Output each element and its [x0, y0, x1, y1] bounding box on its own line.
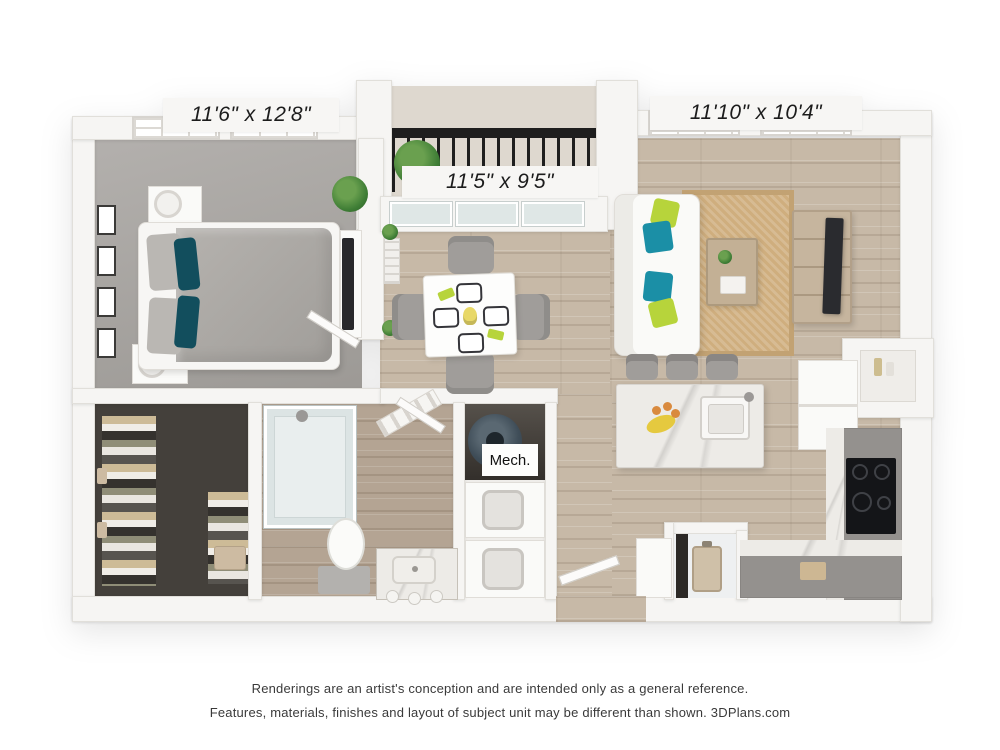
closet-hook-1	[97, 468, 107, 484]
table-centerpiece	[463, 307, 478, 325]
cooktop-burner-4	[877, 496, 891, 510]
closet-bench	[214, 546, 246, 570]
dining-chair-right	[512, 294, 550, 340]
napkin-lime-2	[487, 328, 505, 340]
vanity-knob-2	[408, 592, 421, 605]
living-dimension-label: 11'10" x 10'4"	[690, 101, 822, 125]
suitcase	[692, 546, 722, 592]
bed-pillow-teal-2	[174, 295, 200, 349]
washer-door	[482, 490, 524, 530]
balcony-door-glass-3	[522, 202, 584, 226]
balcony-door-glass-1	[390, 202, 452, 226]
interior-wall-divider-left	[72, 388, 385, 404]
disclaimer-line-2: Features, materials, finishes and layout…	[0, 705, 1000, 720]
entry-door-opening	[556, 596, 646, 622]
dining-table	[423, 272, 518, 357]
closet-hanging-clothes-left	[102, 416, 156, 586]
coffee-table-tray	[720, 276, 746, 294]
wall-art-frame-4	[97, 328, 116, 358]
vanity-drain	[412, 566, 418, 572]
wall-art-frame-1	[97, 205, 116, 235]
dryer-door	[482, 548, 524, 590]
exterior-wall-left	[72, 118, 95, 620]
wall-art-frame-2	[97, 246, 116, 276]
napkin-lime-1	[437, 287, 455, 301]
fruit-orange-1	[652, 406, 661, 415]
shower-floor	[274, 416, 346, 518]
vanity-knob-3	[430, 590, 443, 603]
coffee-table	[706, 238, 758, 306]
living-dimension-chip: 11'10" x 10'4"	[650, 96, 862, 130]
bar-stool-3	[706, 354, 738, 380]
toilet-bowl	[327, 518, 365, 570]
niche-bottle-2	[886, 362, 894, 376]
interior-wall-mech-hall	[545, 402, 557, 600]
dining-wall-decor	[384, 238, 400, 284]
place-setting-4	[458, 333, 485, 354]
entry-closet-shelving	[676, 534, 688, 598]
bar-stool-2	[666, 354, 698, 380]
entry-console	[636, 538, 672, 598]
island-faucet	[744, 392, 754, 402]
sofa-pillow-teal-1	[642, 220, 674, 254]
island-sink-basin	[708, 404, 744, 434]
mech-label: Mech.	[490, 452, 531, 469]
niche-bottle-1	[874, 358, 882, 376]
disclaimer-line-1: Renderings are an artist's conception an…	[0, 681, 1000, 696]
wall-art-frame-3	[97, 287, 116, 317]
place-setting-2	[433, 307, 460, 328]
kitchen-counter-bottom-edge	[740, 540, 902, 556]
bedroom-dimension-label: 11'6" x 12'8"	[191, 103, 311, 127]
bar-stool-1	[626, 354, 658, 380]
closet-hook-2	[97, 522, 107, 538]
bedroom-dimension-chip: 11'6" x 12'8"	[163, 98, 339, 132]
shower-head	[296, 410, 308, 422]
exterior-wall-bottom	[72, 596, 932, 622]
place-setting-1	[456, 283, 483, 304]
cutting-board	[800, 562, 826, 580]
bedroom-tv	[342, 238, 354, 330]
balcony-door-glass-2	[456, 202, 518, 226]
toilet-tank	[318, 566, 370, 594]
bed-duvet	[176, 228, 332, 362]
lamp-top	[154, 190, 182, 218]
cooktop-burner-3	[852, 492, 872, 512]
dining-wall-plant-1	[382, 224, 398, 240]
dining-chair-bottom	[446, 352, 494, 394]
mech-chip: Mech.	[482, 444, 538, 476]
place-setting-3	[483, 306, 510, 327]
dining-dimension-label: 11'5" x 9'5"	[446, 170, 554, 194]
fruit-orange-2	[663, 402, 672, 411]
suitcase-handle	[702, 541, 712, 547]
closet-hanging-clothes-right	[208, 492, 248, 584]
interior-wall-closet-bath	[248, 402, 262, 600]
vanity-knob-1	[386, 590, 399, 603]
coffee-table-plant	[718, 250, 732, 264]
dining-dimension-chip: 11'5" x 9'5"	[402, 166, 598, 198]
cooktop-burner-2	[874, 464, 890, 480]
living-tv	[822, 218, 843, 315]
floorplan-canvas: 11'6" x 12'8" 11'5" x 9'5" 11'10" x 10'4…	[0, 0, 1000, 750]
bedroom-potted-plant	[332, 176, 368, 212]
niche-shelf	[860, 350, 916, 402]
cooktop-burner-1	[852, 464, 868, 480]
dining-chair-top	[448, 236, 494, 274]
floorplan: 11'6" x 12'8" 11'5" x 9'5" 11'10" x 10'4…	[0, 0, 1000, 750]
fruit-orange-3	[671, 409, 680, 418]
